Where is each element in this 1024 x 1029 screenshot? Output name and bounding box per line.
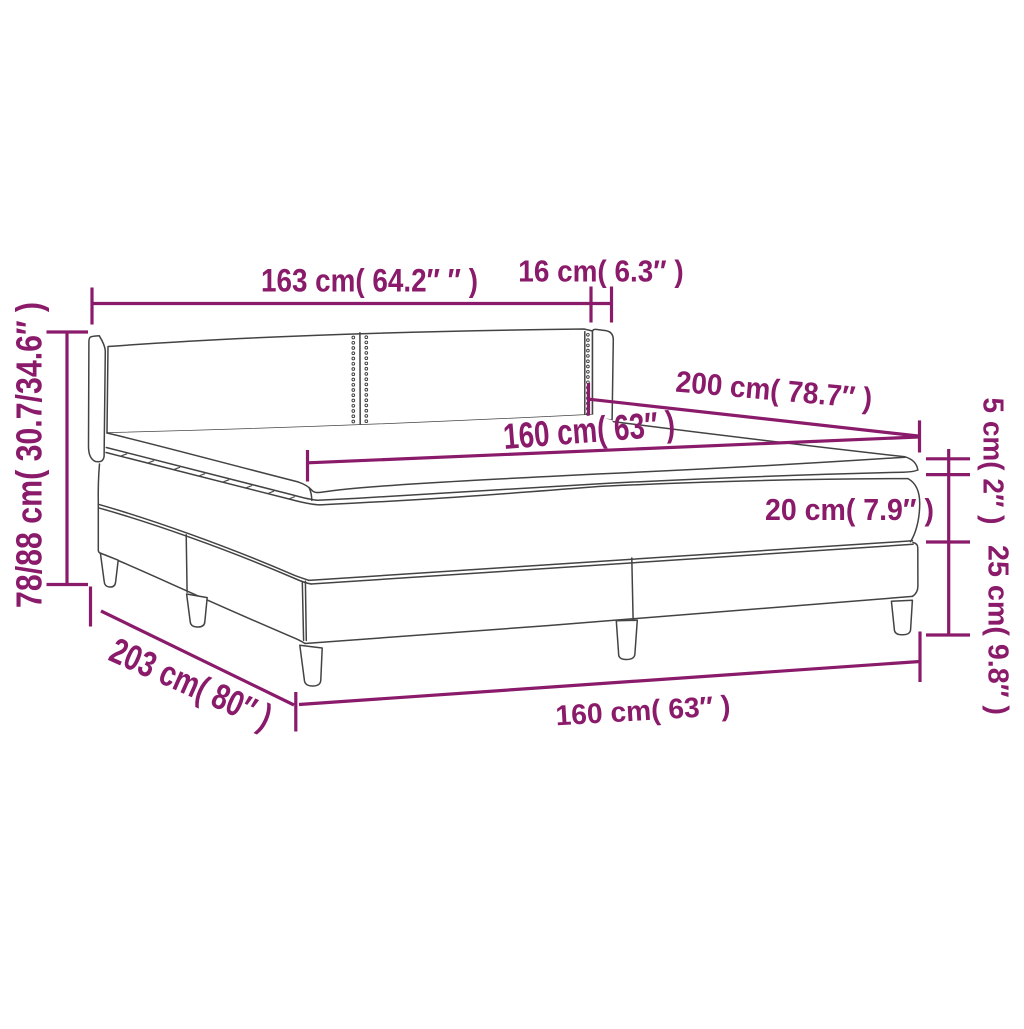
svg-text:163 cm( 64.2″ ″ ): 163 cm( 64.2″ ″ ) — [261, 263, 478, 299]
svg-text:78/88 cm( 30.7/34.6″ ): 78/88 cm( 30.7/34.6″ ) — [9, 302, 50, 608]
svg-text:16 cm( 6.3″ ): 16 cm( 6.3″ ) — [518, 254, 683, 289]
svg-text:5 cm( 2″ ): 5 cm( 2″ ) — [976, 398, 1008, 525]
svg-text:20 cm( 7.9″ ): 20 cm( 7.9″ ) — [765, 493, 934, 527]
svg-text:25 cm( 9.8″ ): 25 cm( 9.8″ ) — [982, 545, 1014, 715]
